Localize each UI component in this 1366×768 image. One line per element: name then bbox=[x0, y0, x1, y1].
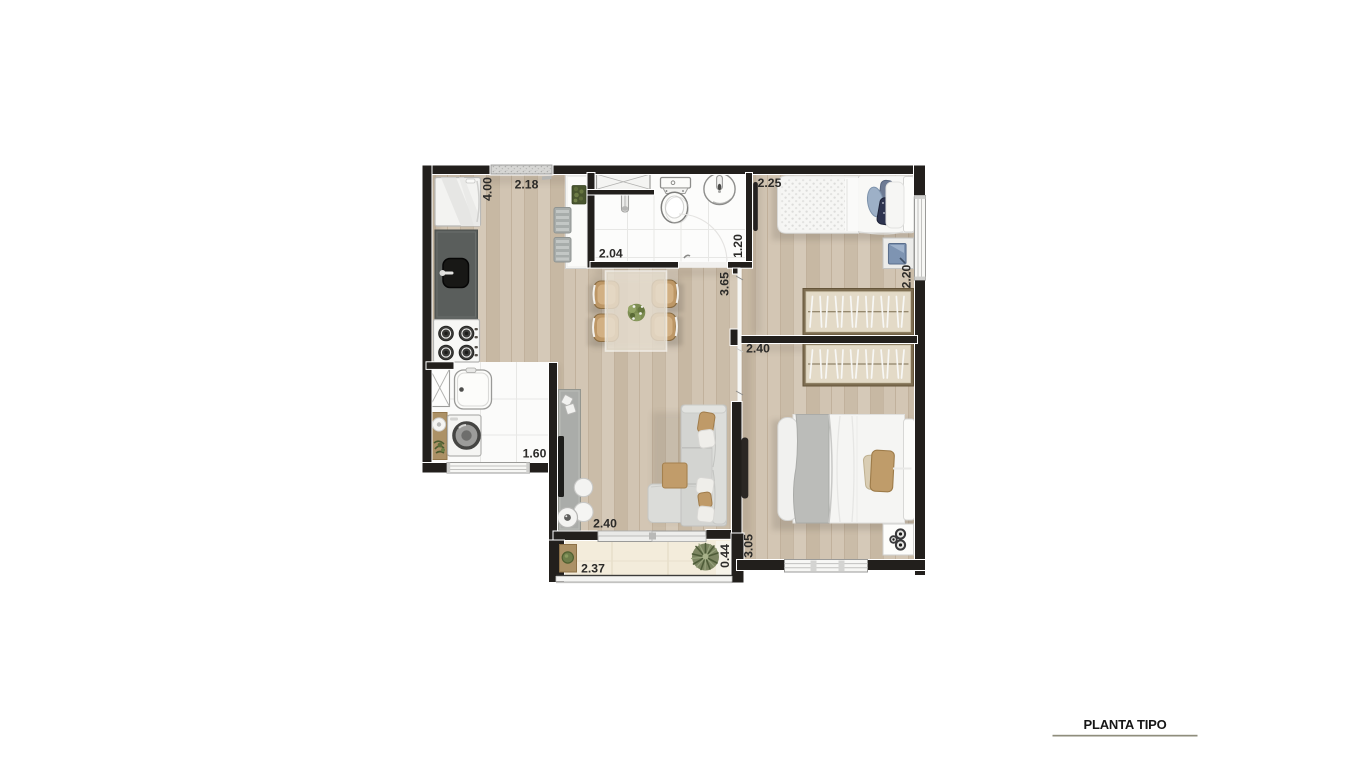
svg-text:2.40: 2.40 bbox=[746, 342, 770, 356]
svg-text:2.18: 2.18 bbox=[515, 178, 539, 192]
svg-text:2.20: 2.20 bbox=[900, 264, 914, 288]
svg-text:2.04: 2.04 bbox=[599, 247, 623, 261]
svg-text:1.60: 1.60 bbox=[523, 447, 547, 461]
svg-text:1.20: 1.20 bbox=[731, 234, 745, 258]
svg-text:PLANTA TIPO: PLANTA TIPO bbox=[1083, 717, 1166, 732]
svg-text:0.44: 0.44 bbox=[718, 544, 732, 568]
svg-text:4.00: 4.00 bbox=[481, 177, 495, 201]
svg-text:2.40: 2.40 bbox=[593, 517, 617, 531]
svg-text:3.05: 3.05 bbox=[742, 534, 756, 558]
svg-text:2.37: 2.37 bbox=[581, 562, 605, 576]
svg-text:2.25: 2.25 bbox=[758, 176, 782, 190]
svg-text:3.65: 3.65 bbox=[718, 272, 732, 296]
